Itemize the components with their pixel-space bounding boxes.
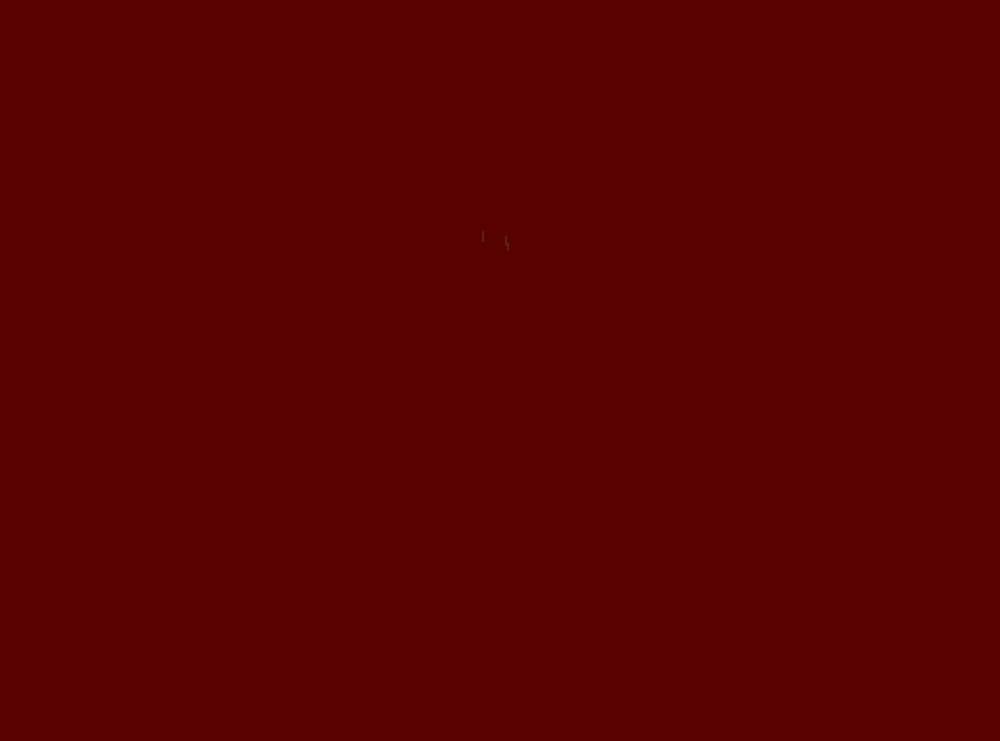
cursor-artifact-mark (482, 231, 484, 242)
blank-screen (0, 0, 1000, 741)
cursor-artifact-mark (507, 243, 509, 251)
cursor-artifact-mark (505, 236, 507, 246)
